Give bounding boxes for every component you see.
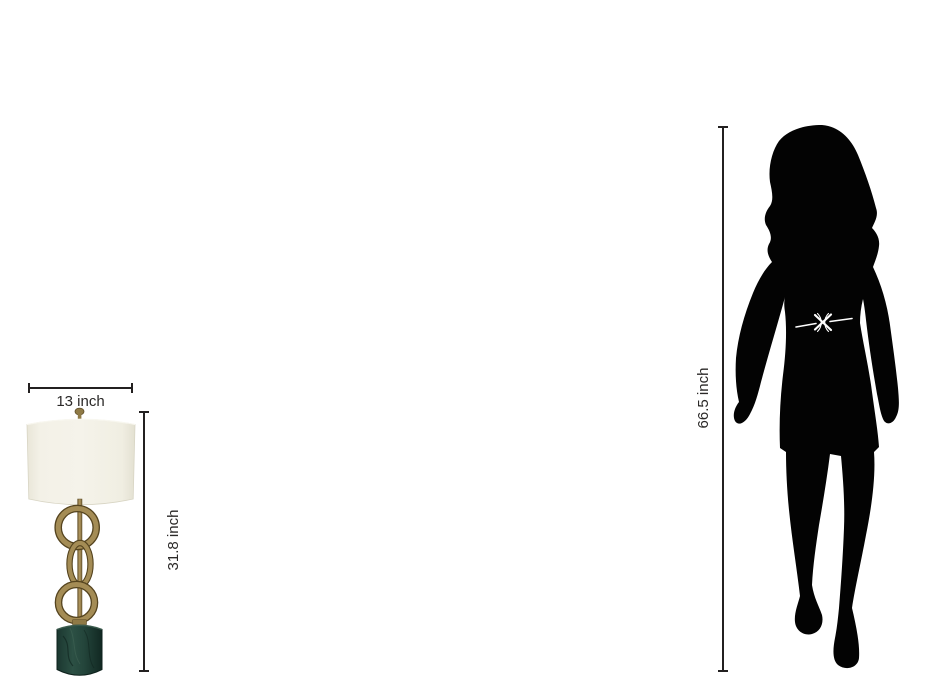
woman-silhouette bbox=[725, 118, 910, 678]
lamp-shade bbox=[27, 419, 135, 505]
dimension-tick bbox=[28, 383, 30, 393]
dimension-tick bbox=[139, 670, 149, 672]
lamp-stem bbox=[78, 499, 82, 624]
lamp-width-label: 13 inch bbox=[28, 393, 133, 411]
lamp-ring-bottom bbox=[59, 585, 95, 621]
lamp-width-dimension-line bbox=[28, 387, 133, 389]
lamp-base bbox=[57, 625, 102, 675]
dimension-tick bbox=[139, 411, 149, 413]
lamp-base-collar bbox=[73, 620, 87, 626]
table-lamp-illustration bbox=[20, 403, 145, 685]
lamp-height-label: 31.8 inch bbox=[165, 490, 183, 590]
figure-height-label: 66.5 inch bbox=[695, 348, 713, 448]
lamp-finial-neck bbox=[78, 414, 82, 420]
size-comparison-image: 13 inch 31.8 inch 66.5 inch bbox=[0, 0, 933, 700]
woman-silhouette-path bbox=[734, 125, 899, 668]
lamp-height-dimension-line bbox=[143, 411, 145, 672]
dimension-tick bbox=[131, 383, 133, 393]
figure-height-dimension-line bbox=[722, 126, 724, 672]
